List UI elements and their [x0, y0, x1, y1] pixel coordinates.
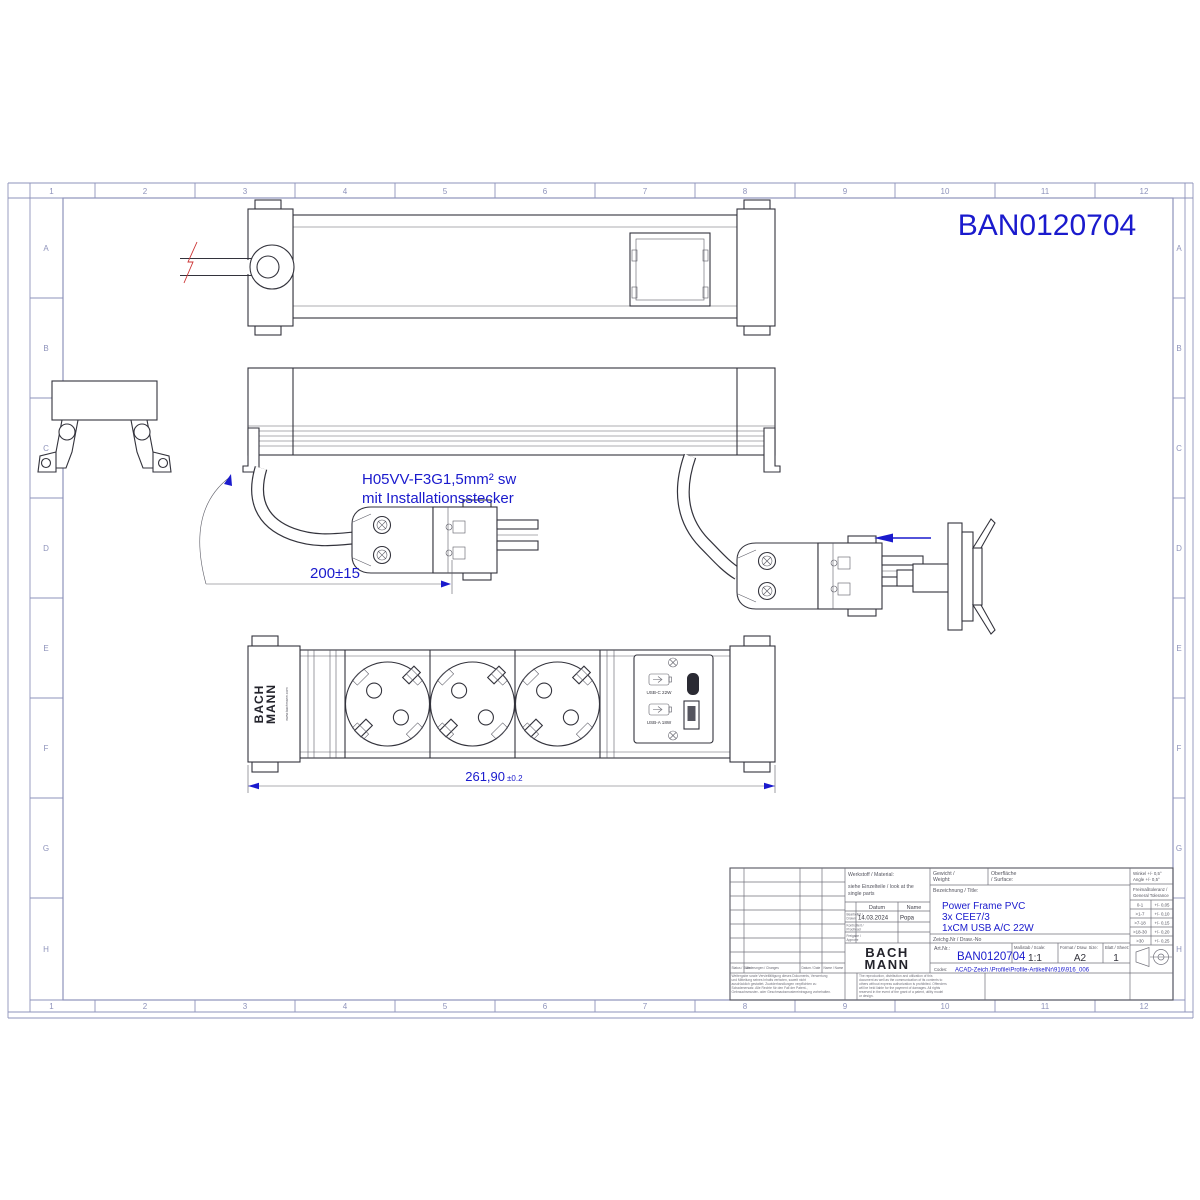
- grid-col-label: 10: [941, 1002, 950, 1011]
- grid-row-label: A: [1176, 244, 1182, 253]
- grid-col-label: 12: [1140, 1002, 1149, 1011]
- name-header: Name: [907, 905, 922, 911]
- front-logo-line2: MANN: [264, 684, 278, 724]
- grid-row-label: B: [1176, 344, 1181, 353]
- checked-label2: Proofread: [847, 928, 861, 932]
- grid-col-label: 3: [243, 187, 248, 196]
- bracket-view: [38, 381, 171, 472]
- grid-col-label: 1: [49, 1002, 54, 1011]
- surface-label2: / Surface:: [991, 877, 1013, 883]
- designation-label: Bezeichnung / Title:: [933, 888, 978, 894]
- grid-row-label: G: [43, 844, 49, 853]
- mounting-foot-right: [764, 428, 780, 472]
- drawno-label: Zeichg.Nr / Draw.-No: [933, 937, 982, 943]
- tolerance-range: >18-30: [1133, 930, 1147, 935]
- drawing-canvas: 112233445566778899101011111212AABBCCDDEE…: [0, 0, 1200, 1200]
- grid-row-label: C: [1176, 444, 1182, 453]
- angle-tolerance1: Winkel +/- 0,5°: [1133, 871, 1162, 876]
- general-tolerance2: General Tolerance: [1133, 893, 1169, 898]
- grid-row-label: F: [44, 744, 49, 753]
- scale-value: 1:1: [1028, 953, 1042, 964]
- sheet-value: 1: [1113, 953, 1119, 964]
- tolerance-range: >30: [1136, 939, 1144, 944]
- format-value: A2: [1074, 953, 1087, 964]
- usb-c-port-icon: [687, 673, 699, 695]
- module-cutout: [630, 233, 710, 306]
- title-line: 1xCM USB A/C 22W: [942, 923, 1034, 934]
- grid-col-label: 4: [343, 1002, 348, 1011]
- drawn-name: Popa: [900, 916, 915, 922]
- installation-plug: [897, 519, 995, 634]
- material-value2: single parts: [848, 891, 875, 897]
- grid-row-label: E: [1176, 644, 1181, 653]
- grid-col-label: 3: [243, 1002, 248, 1011]
- grid-col-label: 8: [743, 187, 748, 196]
- codes-label: Codes:: [934, 967, 947, 972]
- usb-c-label: USB-C 22W: [646, 690, 672, 695]
- grid-row-label: H: [1176, 945, 1182, 954]
- socket-cee73: [346, 662, 430, 746]
- grid-col-label: 9: [843, 1002, 848, 1011]
- tolerance-value: +/- 0,25: [1154, 939, 1170, 944]
- strip-length-dim-text: 261,90: [465, 769, 505, 784]
- grid-row-label: B: [43, 344, 48, 353]
- cable-detail-right: [683, 456, 995, 634]
- front-logo-url: www.bachmann.com: [285, 687, 289, 720]
- title-block: Status / State Änderungen / Changes Datu…: [730, 868, 1173, 1000]
- artnr-value: BAN0120704: [957, 951, 1026, 963]
- socket-cee73: [516, 662, 600, 746]
- changes-label: Änderungen / Changes: [746, 966, 779, 970]
- grid-row-label: D: [43, 544, 49, 553]
- grid-col-label: 2: [143, 1002, 148, 1011]
- title-line: Power Frame PVC: [942, 901, 1025, 912]
- drawing-sheet: 112233445566778899101011111212AABBCCDDEE…: [0, 0, 1200, 1200]
- grid-row-label: F: [1177, 744, 1182, 753]
- grid-col-label: 6: [543, 187, 548, 196]
- name-label: Name / Name: [824, 966, 844, 970]
- grid-row-label: C: [43, 444, 49, 453]
- grid-row-label: D: [1176, 544, 1182, 553]
- drawn-label2: Drawn:: [847, 917, 857, 921]
- codes-value: ACAD-Zeich.\Profile\Profile-ArtikelNr\91…: [955, 968, 1090, 974]
- cable-detail-left: 200±15 H05VV-F3G1,5mm² sw mit Installati…: [200, 468, 538, 594]
- tolerance-range: 0-1: [1137, 903, 1144, 908]
- angle-tolerance2: Angle +/- 0,5°: [1133, 877, 1160, 882]
- scale-label: Maßstab / Scale:: [1014, 945, 1045, 950]
- top-view: [180, 200, 775, 335]
- strip-length-tol-text: ±0.2: [507, 774, 523, 783]
- date-label: Datum / Date: [802, 966, 821, 970]
- tolerance-value: +/- 0,20: [1154, 930, 1170, 935]
- cable-length-dim-text: 200±15: [310, 565, 360, 582]
- assembly-arrow: [874, 534, 931, 543]
- tolerance-value: +/- 0,10: [1154, 912, 1170, 917]
- artnr-label: Art.Nr.:: [934, 946, 950, 952]
- grid-col-label: 11: [1041, 1002, 1050, 1011]
- grid-col-label: 11: [1041, 187, 1050, 196]
- usb-a-label: USB-A 18W: [647, 720, 672, 725]
- grid-col-label: 7: [643, 187, 648, 196]
- grid-col-label: 7: [643, 1002, 648, 1011]
- grid-col-label: 9: [843, 187, 848, 196]
- general-tolerance1: Freimaßtoleranz /: [1133, 887, 1168, 892]
- title-line: 3x CEE7/3: [942, 912, 990, 923]
- cable-spec-line1: H05VV-F3G1,5mm² sw: [362, 471, 516, 488]
- socket-cee73: [431, 662, 515, 746]
- grid-col-label: 6: [543, 1002, 548, 1011]
- grid-col-label: 1: [49, 187, 54, 196]
- drawing-number-headline: BAN0120704: [958, 209, 1136, 242]
- cable-entry: [180, 242, 294, 289]
- material-label: Werkstoff / Material:: [848, 872, 894, 878]
- dimension-strip-length: 261,90 ±0.2: [248, 765, 775, 793]
- cable-spec-line2: mit Installationsstecker: [362, 490, 514, 507]
- drawn-date: 14.03.2024: [858, 916, 889, 922]
- usb-module: USB-C 22W USB-A 18W: [634, 655, 713, 743]
- grid-col-label: 4: [343, 187, 348, 196]
- tolerance-range: >1-7: [1136, 912, 1145, 917]
- tolerance-value: +/- 0,05: [1154, 903, 1170, 908]
- grid-col-label: 5: [443, 1002, 448, 1011]
- approved-label2: Approve: [847, 938, 859, 942]
- tolerance-range: >7-18: [1134, 921, 1146, 926]
- grid-col-label: 12: [1140, 187, 1149, 196]
- bachmann-logo-line2: MANN: [865, 957, 910, 972]
- weight-label2: Weight:: [933, 877, 951, 883]
- tolerance-value: +/- 0,15: [1154, 921, 1170, 926]
- grid-row-label: E: [43, 644, 48, 653]
- grid-col-label: 2: [143, 187, 148, 196]
- side-view: [243, 368, 780, 472]
- grid-col-label: 8: [743, 1002, 748, 1011]
- grid-row-label: A: [43, 244, 49, 253]
- grid-col-label: 10: [941, 187, 950, 196]
- format-label: Format / Draw. Size:: [1060, 945, 1098, 950]
- grid-row-label: G: [1176, 844, 1182, 853]
- legal-text-en: The reproduction, distribution and utili…: [859, 974, 947, 998]
- datum-header: Datum: [869, 905, 886, 911]
- grid-row-label: H: [43, 945, 49, 954]
- sheet-label: Blatt / Sheet:: [1105, 945, 1129, 950]
- material-value1: siehe Einzelteile / look at the: [848, 884, 914, 890]
- legal-text-de: Weitergabe sowie Vervielfältigung dieses…: [732, 974, 832, 994]
- front-view: BACH MANN www.bachmann.com: [248, 636, 775, 793]
- mounting-foot-left: [243, 428, 259, 472]
- grid-col-label: 5: [443, 187, 448, 196]
- projection-symbol-icon: [1136, 948, 1172, 967]
